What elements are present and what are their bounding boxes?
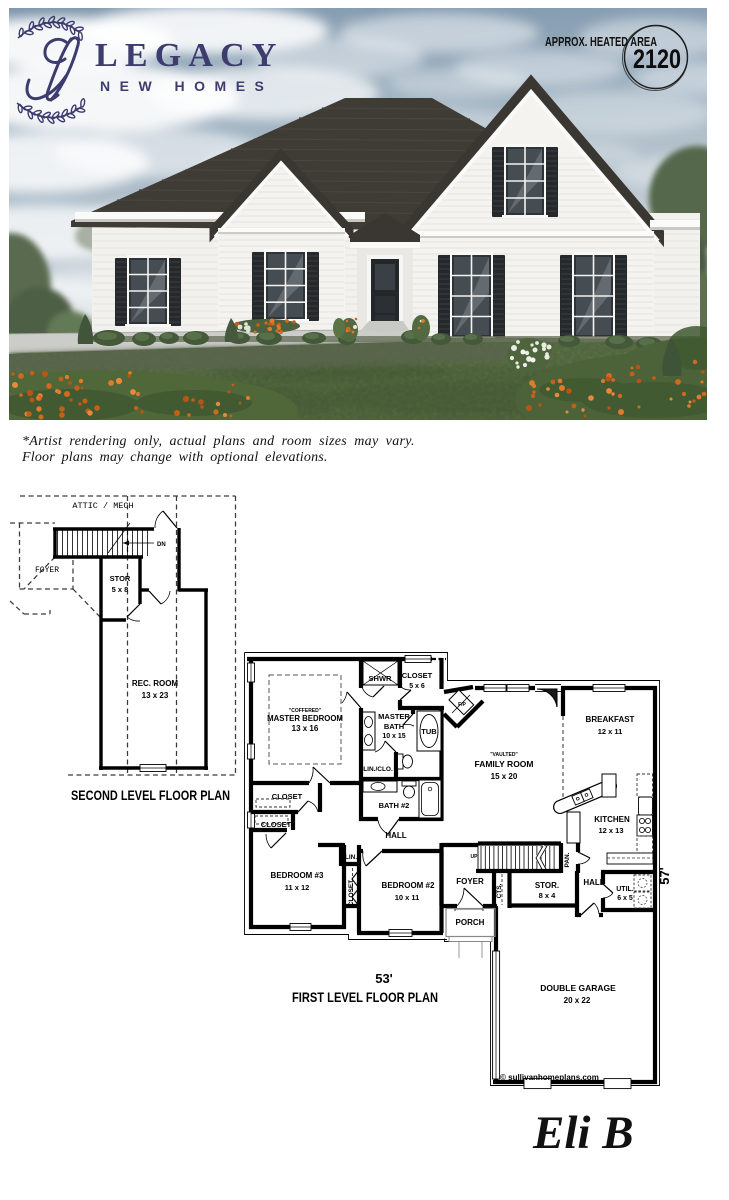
svg-text:5 x 8: 5 x 8	[112, 585, 129, 594]
svg-text:BREAKFAST: BREAKFAST	[586, 715, 635, 724]
svg-text:10 x 11: 10 x 11	[395, 893, 420, 902]
svg-text:NEW HOMES: NEW HOMES	[100, 78, 273, 94]
svg-text:HALL: HALL	[385, 831, 406, 840]
svg-text:BATH: BATH	[384, 722, 404, 731]
svg-text:SECOND LEVEL FLOOR PLAN: SECOND LEVEL FLOOR PLAN	[71, 787, 230, 803]
svg-text:CLOSET: CLOSET	[272, 792, 303, 801]
svg-text:LIN.: LIN.	[345, 854, 357, 861]
svg-text:53': 53'	[375, 971, 393, 986]
svg-text:11 x 12: 11 x 12	[285, 883, 310, 892]
svg-text:20 x 22: 20 x 22	[564, 996, 591, 1005]
svg-text:CLOSET: CLOSET	[348, 880, 355, 906]
svg-text:FOYER: FOYER	[35, 566, 59, 575]
svg-text:BATH #2: BATH #2	[379, 801, 410, 810]
svg-text:13 x 23: 13 x 23	[142, 691, 169, 700]
svg-text:F/P: F/P	[458, 702, 466, 708]
svg-text:FAMILY ROOM: FAMILY ROOM	[474, 759, 533, 769]
svg-text:ATTIC / MECH: ATTIC / MECH	[72, 501, 133, 511]
svg-text:CLOSET: CLOSET	[402, 671, 433, 680]
svg-text:MASTER: MASTER	[378, 712, 410, 721]
svg-text:10 x 15: 10 x 15	[382, 733, 405, 740]
svg-text:KITCHEN: KITCHEN	[594, 815, 630, 824]
svg-text:STOR: STOR	[110, 574, 131, 583]
svg-text:12 x 13: 12 x 13	[598, 826, 623, 835]
svg-text:"VAULTED": "VAULTED"	[490, 752, 518, 758]
svg-text:© sullivanhomeplans.com: © sullivanhomeplans.com	[500, 1073, 599, 1082]
svg-text:DN: DN	[157, 542, 166, 548]
svg-text:BEDROOM #2: BEDROOM #2	[382, 881, 435, 890]
svg-text:PORCH: PORCH	[456, 918, 485, 927]
svg-text:STOR.: STOR.	[535, 881, 559, 890]
svg-text:15 x 20: 15 x 20	[491, 772, 518, 781]
svg-text:REC. ROOM: REC. ROOM	[132, 679, 179, 688]
svg-text:5 x 6: 5 x 6	[409, 683, 425, 690]
svg-text:CLOSET: CLOSET	[261, 820, 292, 829]
svg-text:57': 57'	[657, 867, 672, 885]
svg-text:6 x 5: 6 x 5	[617, 895, 633, 902]
svg-text:2120: 2120	[633, 44, 681, 74]
svg-text:CTS.: CTS.	[496, 883, 503, 898]
svg-text:8 x 4: 8 x 4	[539, 891, 557, 900]
svg-text:LEGACY: LEGACY	[95, 37, 284, 74]
svg-text:13 x 16: 13 x 16	[292, 724, 319, 733]
svg-text:MASTER BEDROOM: MASTER BEDROOM	[267, 714, 343, 723]
svg-text:UTIL.: UTIL.	[616, 886, 634, 893]
svg-text:TUB: TUB	[421, 727, 437, 736]
svg-text:FOYER: FOYER	[456, 877, 484, 886]
svg-text:FIRST LEVEL FLOOR PLAN: FIRST LEVEL FLOOR PLAN	[292, 989, 438, 1005]
svg-text:UP: UP	[471, 854, 479, 860]
svg-text:12 x 11: 12 x 11	[598, 727, 623, 736]
svg-text:DOUBLE GARAGE: DOUBLE GARAGE	[540, 983, 616, 993]
svg-text:BEDROOM #3: BEDROOM #3	[271, 871, 324, 880]
svg-text:PAN.: PAN.	[564, 852, 571, 867]
svg-text:SHWR: SHWR	[369, 674, 392, 683]
svg-text:LIN./CLO.: LIN./CLO.	[363, 766, 393, 773]
